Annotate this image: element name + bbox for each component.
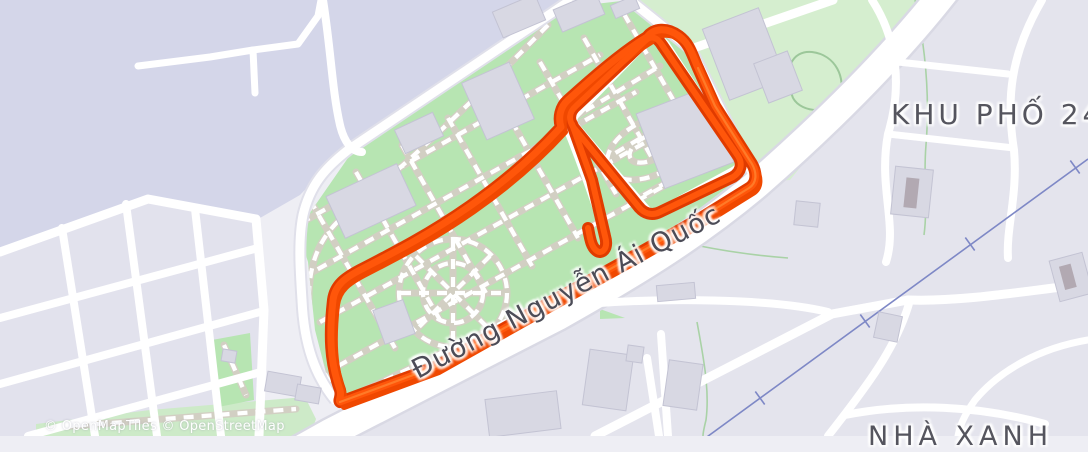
map-svg bbox=[0, 0, 1088, 436]
map-attribution[interactable]: © OpenMapTiles © OpenStreetMap bbox=[44, 419, 285, 434]
map-canvas[interactable]: Đường Nguyễn Ái Quốc KHU PHỐ 24 NHÀ XANH… bbox=[0, 0, 1088, 436]
